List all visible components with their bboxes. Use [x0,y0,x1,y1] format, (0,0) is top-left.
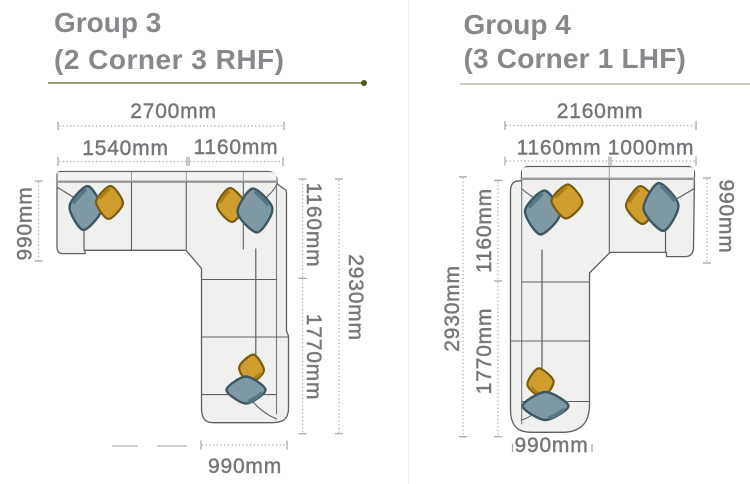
svg-text:2930mm: 2930mm [344,254,367,341]
svg-text:990mm: 990mm [208,455,282,478]
svg-text:1770mm: 1770mm [302,314,325,401]
svg-text:990mm: 990mm [14,186,37,260]
svg-text:2700mm: 2700mm [130,100,217,123]
svg-text:1160mm: 1160mm [194,136,279,159]
svg-text:1000mm: 1000mm [608,137,695,160]
svg-text:1770mm: 1770mm [473,308,496,395]
svg-text:2160mm: 2160mm [557,100,644,123]
svg-text:990mm: 990mm [715,179,738,253]
svg-text:1160mm: 1160mm [517,137,602,160]
svg-text:1160mm: 1160mm [473,188,496,273]
svg-text:1540mm: 1540mm [82,137,169,160]
svg-text:990mm: 990mm [514,434,588,457]
svg-text:1160mm: 1160mm [302,183,325,268]
svg-text:2930mm: 2930mm [441,265,464,352]
